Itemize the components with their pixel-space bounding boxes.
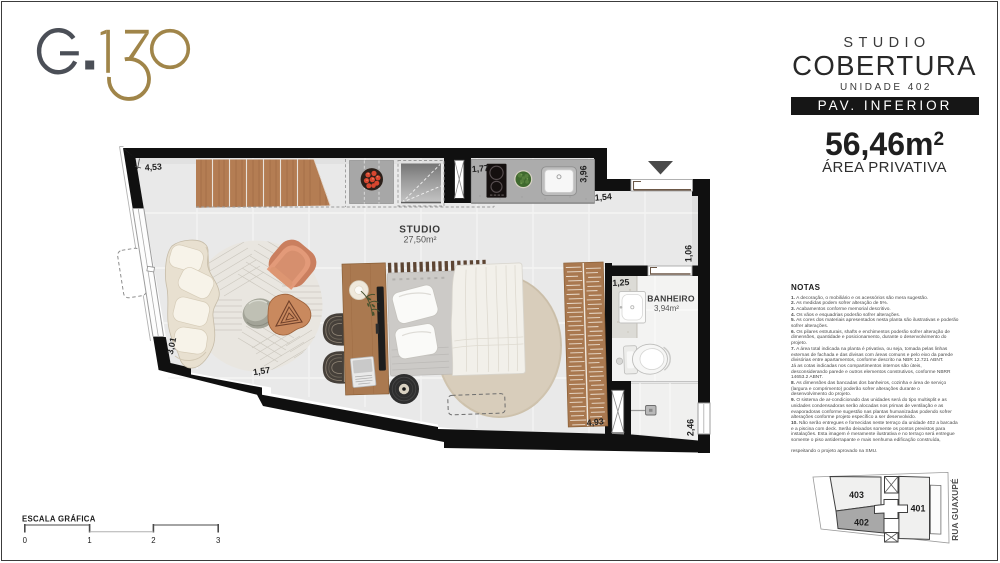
svg-text:403: 403 (849, 490, 864, 500)
svg-text:402: 402 (854, 518, 869, 528)
svg-text:401: 401 (911, 504, 926, 514)
svg-text:4,93: 4,93 (586, 416, 604, 428)
svg-text:RUA GUAXUPÉ: RUA GUAXUPÉ (950, 478, 960, 541)
svg-text:BANHEIRO: BANHEIRO (647, 294, 695, 304)
svg-text:1,54: 1,54 (594, 191, 612, 202)
svg-text:1,25: 1,25 (612, 277, 630, 288)
svg-text:2,46: 2,46 (686, 419, 696, 436)
svg-text:2: 2 (151, 536, 155, 545)
svg-text:3,94m²: 3,94m² (654, 304, 679, 313)
svg-text:1,06: 1,06 (684, 245, 694, 262)
svg-text:4,53: 4,53 (144, 161, 162, 172)
svg-text:3,96: 3,96 (579, 165, 589, 182)
svg-text:27,50m²: 27,50m² (403, 235, 436, 245)
svg-text:1: 1 (87, 536, 91, 545)
svg-text:3: 3 (216, 536, 220, 545)
svg-text:0: 0 (23, 536, 28, 545)
svg-text:ESCALA GRÁFICA: ESCALA GRÁFICA (22, 515, 96, 524)
svg-text:1,77: 1,77 (471, 163, 489, 174)
